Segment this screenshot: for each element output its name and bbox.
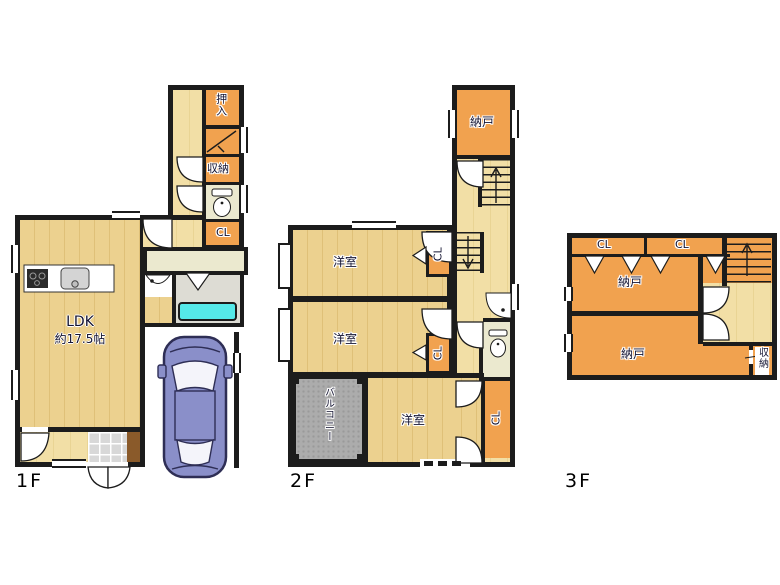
window: [52, 459, 86, 468]
window: [11, 245, 20, 273]
window: [11, 370, 20, 400]
room-label-cl-3f-b: CL: [675, 239, 689, 252]
bathtub: [178, 302, 237, 321]
window: [239, 127, 248, 153]
wall: [363, 376, 368, 462]
wall: [483, 318, 515, 322]
wall: [483, 377, 515, 381]
room-label-shuno-3f: 収納: [755, 347, 769, 375]
room-label-cl-2f-1: CL: [433, 236, 446, 272]
basin-area-1f: [145, 275, 172, 297]
bath-corridor: [145, 297, 172, 323]
door-opening: [22, 427, 48, 432]
window: [510, 284, 519, 310]
wall: [205, 154, 239, 157]
room-label-oshiire: 押入: [214, 93, 227, 127]
wall: [698, 254, 703, 344]
toilet-1f: [205, 185, 239, 219]
wall: [293, 372, 447, 378]
window: [112, 211, 140, 220]
window: [233, 353, 241, 373]
window: [564, 287, 573, 301]
window: [564, 334, 573, 352]
toilet-2f: [483, 322, 510, 377]
room-label-yoshitsu-3: 洋室: [401, 414, 425, 428]
stairs-up-2f: [482, 159, 510, 207]
entrance-step: [127, 432, 140, 462]
room-label-cl-2f-3: CL: [491, 402, 504, 434]
window: [420, 459, 470, 468]
parking-boundary: [234, 373, 239, 468]
door-opening: [86, 462, 128, 467]
wall: [703, 342, 772, 346]
room-label-nando-3f-1: 納戸: [618, 276, 642, 290]
hallway-1f-lower: [143, 215, 205, 249]
stairs-3f: [727, 236, 771, 283]
floor-plan-canvas: LDK 約17.5帖 押入 収納 CL 納戸 CL CL CL 洋室 洋室 洋室…: [0, 0, 780, 585]
room-label-nando-3f-2: 納戸: [621, 348, 645, 362]
floor-label-3f: 3F: [565, 470, 592, 492]
room-label-yoshitsu-2: 洋室: [333, 333, 357, 347]
car: [158, 337, 232, 477]
wall: [205, 182, 239, 185]
wall: [143, 323, 176, 327]
room-label-balcony: バルコニー: [322, 387, 334, 459]
ldk-name: LDK: [25, 314, 135, 330]
bay-window: [278, 243, 292, 289]
window: [239, 185, 248, 213]
room-label-nando-2f: 納戸: [470, 116, 494, 130]
bay-window: [278, 308, 292, 362]
wall: [644, 238, 647, 257]
window: [448, 110, 457, 138]
genkan-tile: [88, 432, 127, 462]
window: [510, 110, 519, 138]
room-label-yoshitsu-1: 洋室: [333, 256, 357, 270]
wall: [293, 296, 447, 302]
wall: [572, 254, 730, 257]
room-label-ldk: LDK 約17.5帖: [25, 314, 135, 347]
parking-boundary: [234, 332, 239, 353]
wall: [205, 219, 239, 222]
wall: [481, 378, 485, 462]
ldk-size: 約17.5帖: [25, 330, 135, 347]
wall: [572, 311, 703, 316]
stairs-1f: [205, 129, 239, 154]
room-label-cl-2f-2: CL: [433, 335, 446, 371]
stairs-down-2f: [456, 232, 482, 273]
room-label-cl-3f-a: CL: [597, 239, 611, 252]
door-opening: [749, 350, 753, 364]
wall: [722, 236, 727, 286]
hallway-3f: [703, 283, 772, 342]
wall: [479, 322, 483, 381]
wall: [478, 159, 482, 207]
floor-label-1f: 1F: [16, 470, 43, 492]
room-yoshitsu3-ext: [447, 378, 483, 462]
wall: [452, 155, 515, 159]
window: [352, 221, 396, 230]
room-label-shuno-1f: 収納: [207, 163, 229, 176]
car-mirror: [158, 365, 166, 378]
room-label-cl-1f: CL: [216, 227, 230, 240]
wall: [480, 232, 484, 273]
car-mirror: [224, 365, 232, 378]
floor-label-2f: 2F: [290, 470, 317, 492]
wall: [202, 88, 206, 248]
